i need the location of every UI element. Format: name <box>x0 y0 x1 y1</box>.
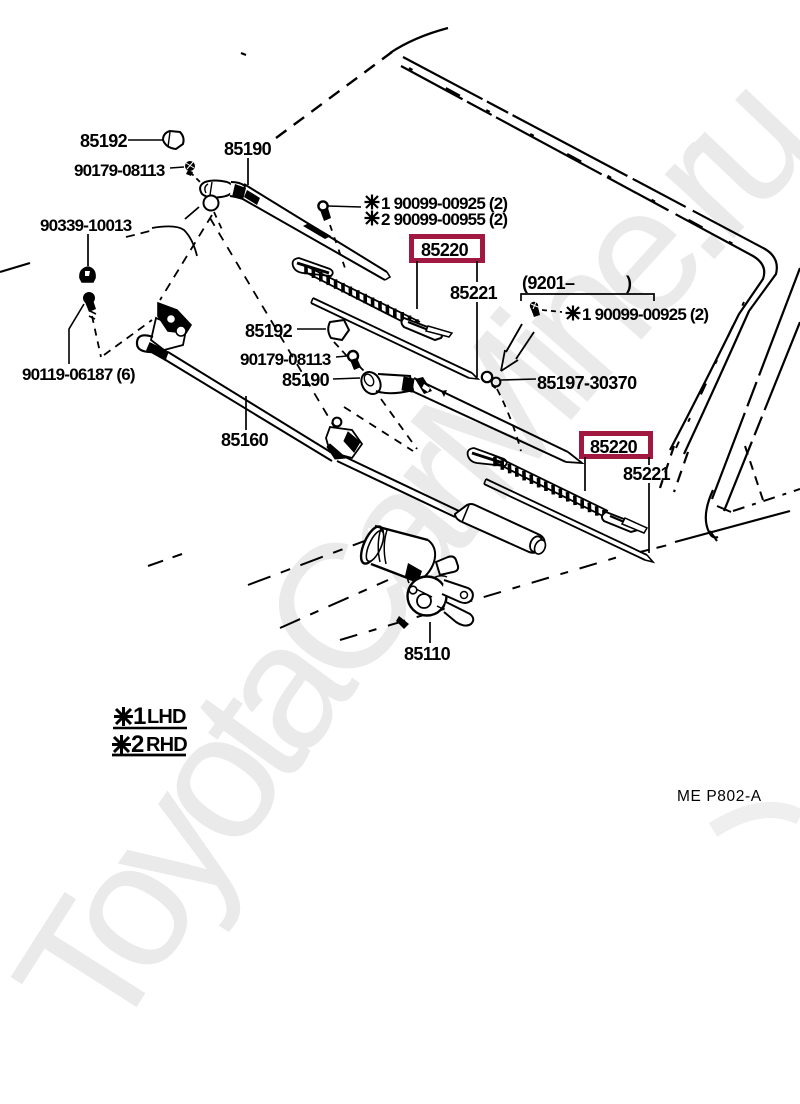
svg-text:85221: 85221 <box>450 283 498 303</box>
svg-text:90119-06187 (6): 90119-06187 (6) <box>22 365 135 384</box>
svg-text:ME P802-A: ME P802-A <box>677 788 762 805</box>
svg-text:85160: 85160 <box>221 430 269 450</box>
svg-text:85110: 85110 <box>404 644 451 664</box>
svg-text:): ) <box>626 273 632 293</box>
svg-text:85190: 85190 <box>282 370 330 390</box>
svg-text:85197-30370: 85197-30370 <box>537 373 637 393</box>
svg-text:1 90099-00925 (2): 1 90099-00925 (2) <box>582 305 708 324</box>
svg-text:85192: 85192 <box>80 131 128 151</box>
svg-text:2 90099-00955 (2): 2 90099-00955 (2) <box>381 210 507 229</box>
svg-text:90179-08113: 90179-08113 <box>74 161 165 180</box>
svg-text:85190: 85190 <box>224 139 272 159</box>
svg-text:85192: 85192 <box>245 321 293 341</box>
svg-text:90339-10013: 90339-10013 <box>40 216 132 235</box>
svg-text:(9201–: (9201– <box>522 273 575 293</box>
svg-text:85221: 85221 <box>623 464 671 484</box>
svg-text:1: 1 <box>133 703 146 730</box>
svg-text:85220: 85220 <box>421 240 469 260</box>
svg-text:RHD: RHD <box>146 734 187 756</box>
svg-text:85220: 85220 <box>590 437 638 457</box>
svg-text:90179-08113: 90179-08113 <box>240 350 331 369</box>
svg-text:LHD: LHD <box>147 706 186 728</box>
